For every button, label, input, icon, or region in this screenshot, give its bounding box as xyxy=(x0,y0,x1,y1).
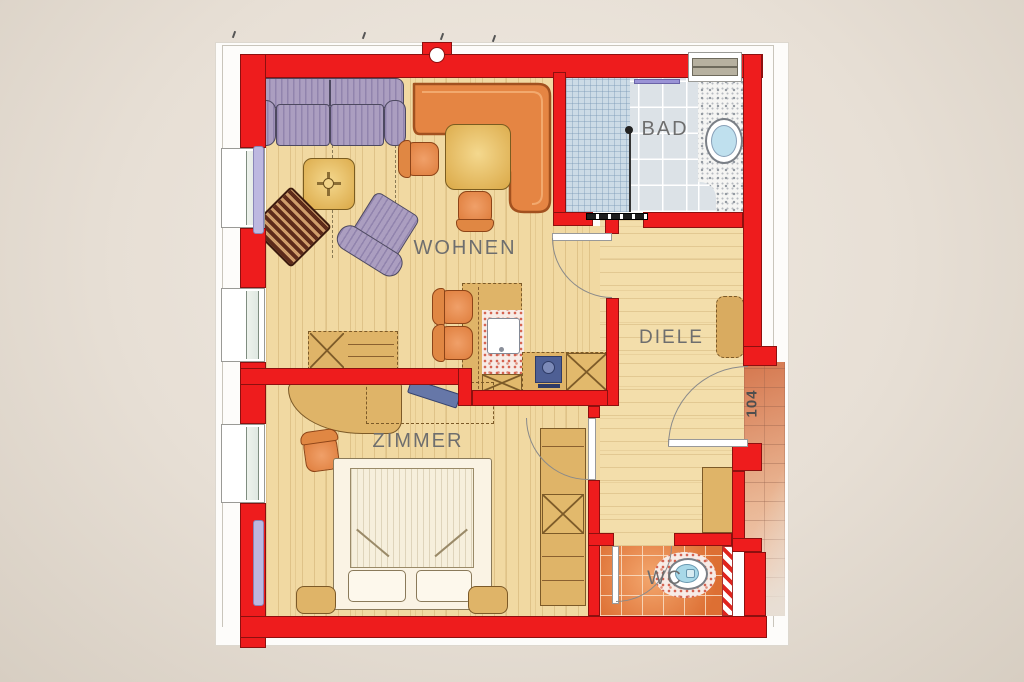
wall-left xyxy=(240,54,266,148)
wardrobe-x-section xyxy=(542,494,584,534)
wall-left xyxy=(240,228,266,288)
apartment-number-label: 104 xyxy=(744,381,761,427)
washbasin-bowl xyxy=(711,125,737,157)
stove-burner xyxy=(542,361,555,374)
wc-shaft-hatch xyxy=(722,546,733,616)
wall-wc-north xyxy=(588,533,614,546)
room-label-living: WOHNEN xyxy=(402,237,528,260)
wall-bathroom-west xyxy=(553,72,566,218)
floor-plan-canvas: WOHNEN ZIMMER DIELE BAD WC 104 xyxy=(0,0,1024,682)
living-room-cabinet-shelf-line xyxy=(348,356,394,357)
window xyxy=(221,288,265,362)
stove-handle xyxy=(538,384,560,388)
bathroom-window-line xyxy=(693,66,737,68)
curtain xyxy=(253,146,264,234)
dining-chair xyxy=(456,190,494,232)
dining-chair xyxy=(398,140,440,178)
wall-bedroom-hall xyxy=(588,480,600,616)
wall-living-bedroom-step xyxy=(458,368,472,406)
bed-pillow xyxy=(348,570,406,602)
room-label-toilet: WC xyxy=(634,568,696,590)
nightstand-right xyxy=(468,586,508,614)
wall-right-jog xyxy=(732,538,762,552)
wall-right xyxy=(744,552,766,616)
wall-right-inset xyxy=(732,471,745,541)
sink-drain xyxy=(499,347,504,352)
kitchen-chair xyxy=(432,324,474,362)
dimension-tick xyxy=(362,32,366,39)
sofa-seat-cushion xyxy=(276,104,330,146)
bed-pillow xyxy=(416,570,472,602)
dimension-tick xyxy=(232,31,236,38)
room-label-hallway: DIELE xyxy=(620,327,723,349)
wall-right-jog xyxy=(732,443,762,471)
wall-living-bedroom xyxy=(240,368,472,385)
nightstand-left xyxy=(296,586,336,614)
curtain xyxy=(253,520,264,606)
shower-partition xyxy=(629,131,631,212)
window xyxy=(221,424,265,503)
bed-blanket xyxy=(350,468,474,568)
wardrobe-shelf-line xyxy=(542,556,584,557)
wardrobe-shelf-line xyxy=(542,580,584,581)
kitchen-base-cabinet xyxy=(566,353,607,391)
wall-hall-stub xyxy=(605,218,619,234)
sliding-door-bathroom xyxy=(586,213,648,220)
shower-area xyxy=(566,78,630,212)
living-room-cabinet-shelf-line xyxy=(348,344,394,345)
living-room-cabinet-x xyxy=(310,333,344,368)
wall-right xyxy=(743,54,762,366)
wall-top xyxy=(240,54,763,78)
dining-table xyxy=(445,124,511,190)
wall-bathroom-south xyxy=(643,212,743,228)
bathroom-shelf xyxy=(634,79,680,84)
coffee-table-ornament-center xyxy=(323,178,334,189)
kitchen-chair xyxy=(432,288,474,326)
window-glazing xyxy=(246,291,259,359)
room-label-bedroom: ZIMMER xyxy=(355,430,481,453)
window-glazing xyxy=(246,427,259,500)
wall-top-tab-notch xyxy=(429,47,445,63)
wall-right-stub xyxy=(743,346,777,366)
sofa-seat-cushion xyxy=(330,104,384,146)
kitchen-cabinet-divider xyxy=(478,287,479,389)
wc-niche xyxy=(733,546,744,616)
dimension-tick xyxy=(440,33,444,40)
wall-kitchen-south xyxy=(472,390,608,406)
room-label-bathroom: BAD xyxy=(625,118,705,141)
wall-wc-north xyxy=(674,533,732,546)
door-leaf-bedroom xyxy=(588,418,596,480)
wall-bottom xyxy=(240,616,767,638)
wall-bedroom-hall-stub xyxy=(588,406,600,418)
sofa-back-divider xyxy=(329,80,331,106)
